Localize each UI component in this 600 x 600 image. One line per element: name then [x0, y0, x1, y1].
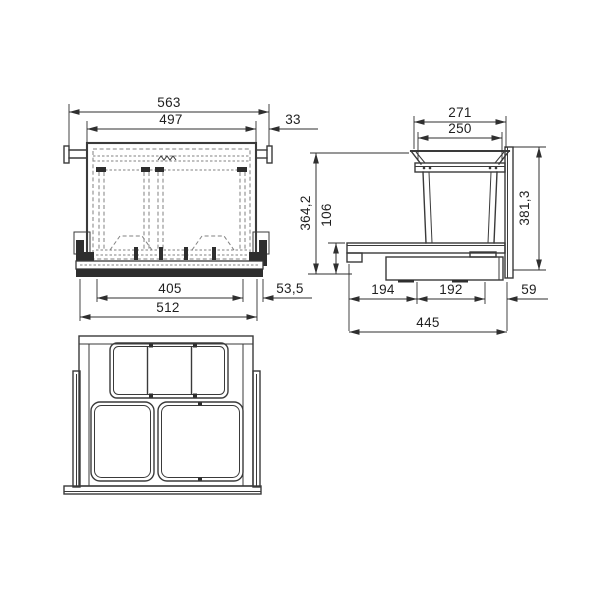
dim-label-250: 250	[448, 121, 471, 136]
mounting-tab-left	[64, 146, 87, 163]
dim-label-512: 512	[156, 300, 179, 315]
lid-frame	[415, 163, 505, 172]
bin-left	[91, 402, 154, 481]
bin-clip	[155, 167, 164, 172]
support-brace	[110, 236, 152, 250]
dim-label-405: 405	[158, 281, 181, 296]
front-view: 563 497 33 405 512 53,5	[64, 95, 318, 321]
technical-drawing-canvas: 563 497 33 405 512 53,5	[0, 0, 600, 600]
dim-label-59: 59	[521, 282, 537, 297]
side-bottom-dimensions: 194 192 59 445	[349, 264, 548, 332]
bin-right	[158, 402, 243, 481]
bin-lid	[411, 151, 509, 172]
side-rail-right	[253, 371, 260, 487]
bin-clip	[96, 167, 106, 172]
top-view	[64, 336, 261, 494]
front-panel	[505, 147, 513, 278]
base-rail	[76, 261, 263, 277]
side-top-dimensions: 271 250	[414, 105, 506, 161]
dim-label-33: 33	[285, 112, 301, 127]
top-bin-three-section	[110, 343, 228, 398]
hidden-internals	[93, 149, 250, 260]
dim-label-497: 497	[159, 112, 182, 127]
dim-label-445: 445	[416, 315, 439, 330]
technical-drawing-page: 563 497 33 405 512 53,5	[0, 0, 600, 600]
platform-end-cap	[347, 253, 362, 262]
front-top-dimensions: 563 497 33	[69, 95, 318, 146]
dim-label-381-3: 381,3	[517, 190, 532, 225]
slide-box	[386, 257, 503, 280]
front-bottom-dimensions: 405 512 53,5	[80, 279, 312, 321]
dim-label-563: 563	[157, 95, 180, 110]
spring-symbol	[158, 156, 176, 160]
side-right-dimension: 381,3	[513, 147, 546, 270]
dim-label-364-2: 364,2	[298, 195, 313, 230]
dim-label-106: 106	[319, 203, 334, 226]
bin-clip	[237, 167, 247, 172]
bin-clip	[141, 167, 150, 172]
frame-outline	[79, 336, 253, 486]
dim-label-194: 194	[371, 282, 395, 297]
dim-label-192: 192	[439, 282, 462, 297]
side-left-dimensions: 364,2 106	[298, 153, 409, 274]
bin-body	[423, 172, 497, 243]
dim-label-271: 271	[448, 105, 471, 120]
mounting-tab-right	[256, 146, 272, 163]
side-view: 271 250 364,2 106 381,3	[298, 105, 548, 332]
dim-label-53-5: 53,5	[276, 281, 303, 296]
pullout-platform	[347, 243, 505, 283]
front-rail	[64, 486, 261, 494]
